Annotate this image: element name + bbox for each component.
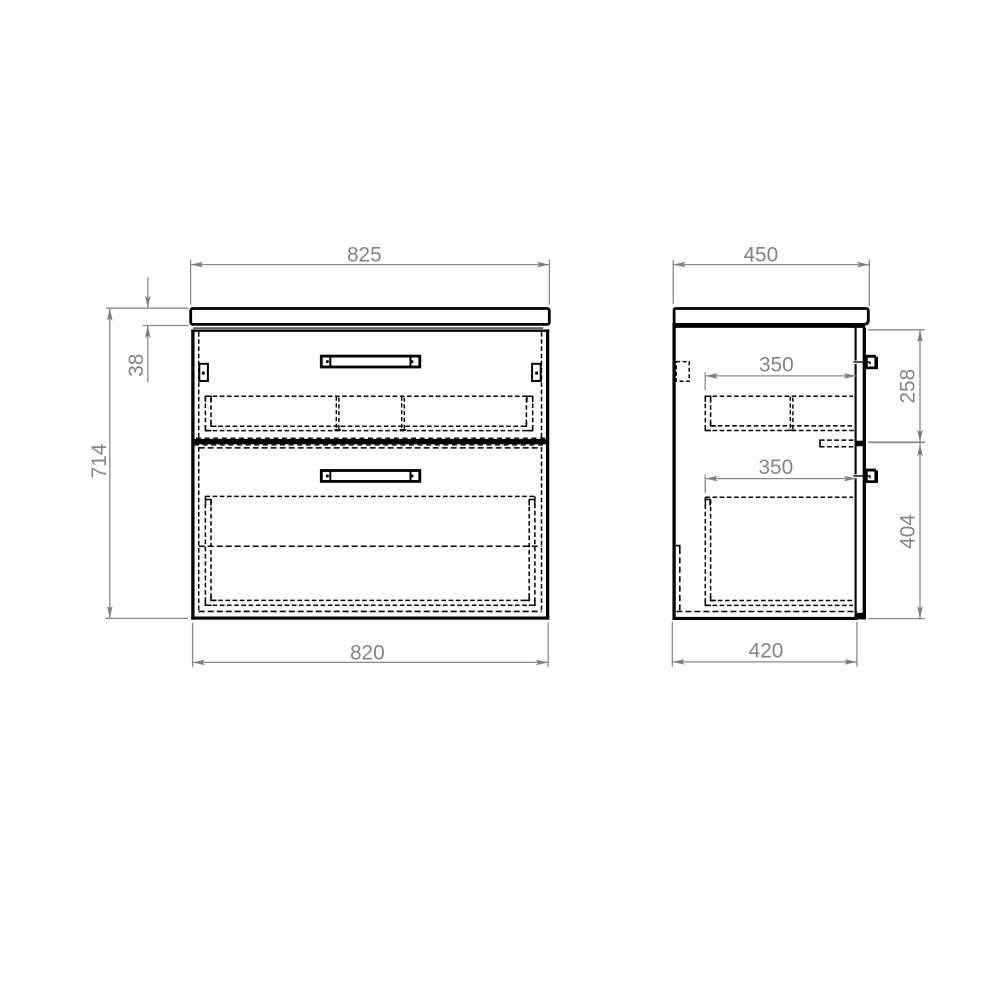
svg-text:825: 825 [347,243,382,266]
svg-text:350: 350 [759,353,794,376]
svg-text:404: 404 [897,514,920,549]
svg-text:258: 258 [897,369,920,404]
svg-text:820: 820 [350,641,385,664]
svg-text:38: 38 [125,354,148,377]
svg-text:714: 714 [88,444,111,479]
svg-text:420: 420 [749,640,784,663]
svg-text:450: 450 [743,243,778,266]
svg-text:350: 350 [758,456,793,479]
